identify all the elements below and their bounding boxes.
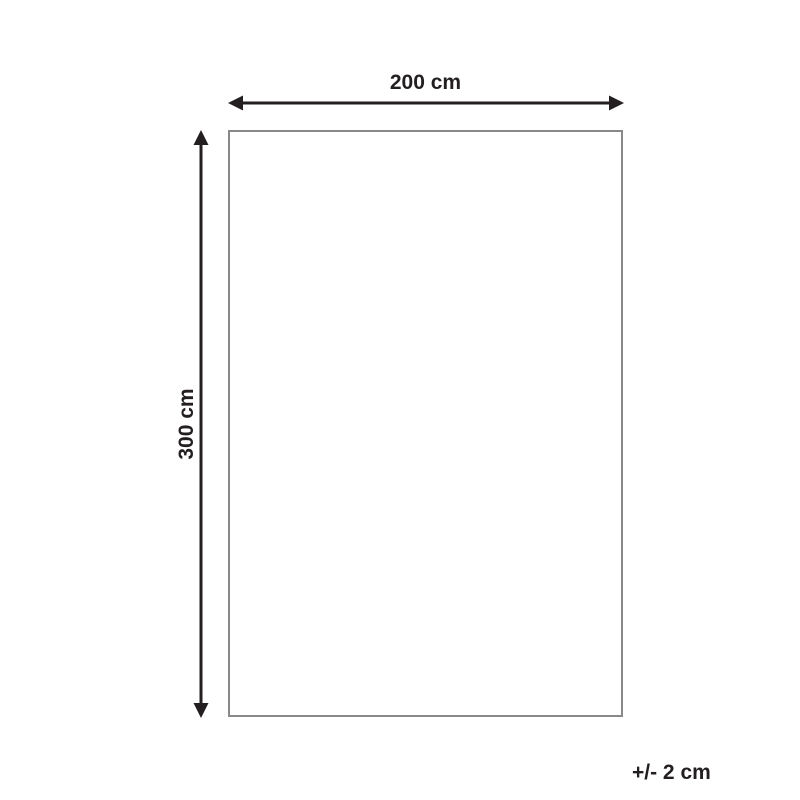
width-dimension-label: 200 cm <box>228 71 623 95</box>
height-arrow-top-head-icon <box>194 130 209 145</box>
width-arrow <box>228 96 624 111</box>
product-outline-rectangle <box>228 130 623 717</box>
width-arrow-right-head-icon <box>609 96 624 111</box>
tolerance-label: +/- 2 cm <box>632 761 711 785</box>
width-arrow-left-head-icon <box>228 96 243 111</box>
height-arrow-bottom-head-icon <box>194 703 209 718</box>
dimension-diagram: 200 cm 300 cm +/- 2 cm <box>0 0 800 800</box>
height-dimension-label: 300 cm <box>175 374 201 474</box>
